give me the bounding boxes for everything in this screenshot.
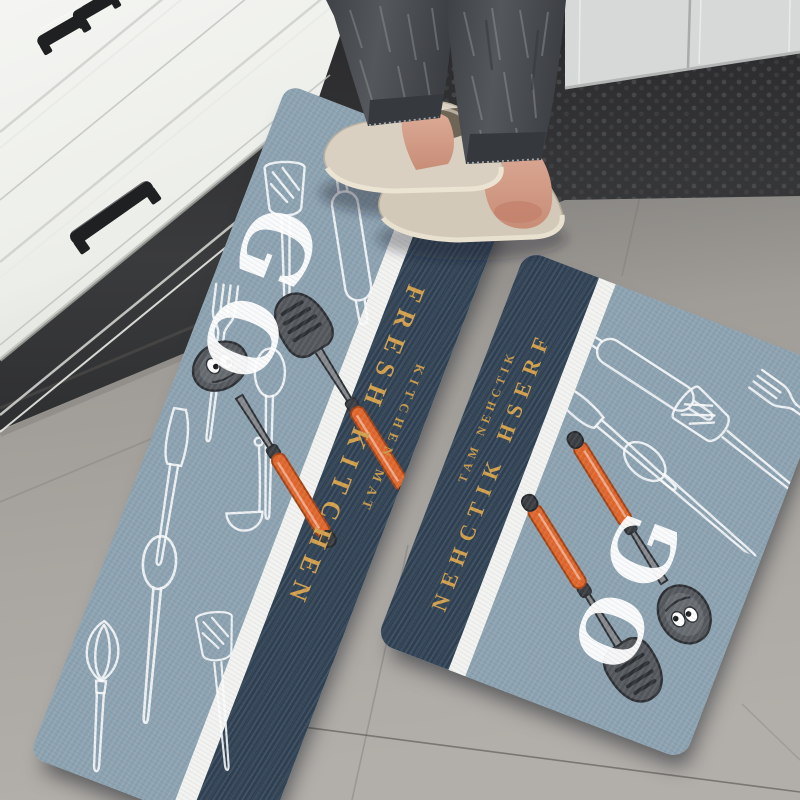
jeans-leg-front [326, 0, 452, 126]
jeans-leg-back [448, 0, 566, 164]
jeans-cuff [466, 132, 546, 164]
person-legs [0, 0, 800, 800]
kitchen-mat-product-photo: GO FRESH KITCHEN KITCHEN MAT OG NEHCTIK … [0, 0, 800, 800]
